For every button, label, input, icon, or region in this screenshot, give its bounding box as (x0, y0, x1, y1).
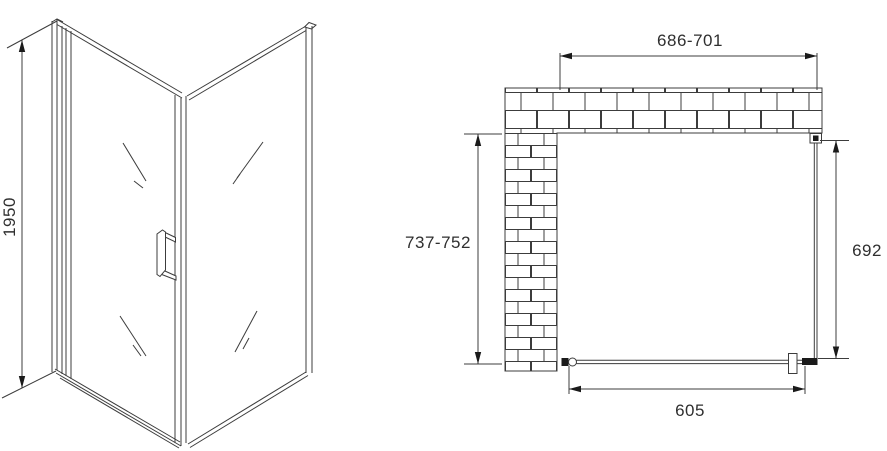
front-isometric-view (2, 19, 316, 448)
depth-dimension-label: 737-752 (398, 234, 478, 252)
side-panel-post (305, 23, 317, 374)
width-dimension-label: 686-701 (650, 32, 730, 50)
door-leaf (562, 354, 818, 374)
door-handle (157, 230, 176, 280)
technical-drawing: 1950 686-701 737-752 692 605 (0, 0, 887, 451)
hinge-pivot (569, 358, 577, 366)
door-dimension-label: 605 (671, 402, 709, 420)
hinge-side-frame (52, 19, 71, 379)
side-glass-panel (810, 134, 822, 361)
top-rails (57, 20, 306, 101)
door-dimension-line (569, 366, 805, 394)
door-handle-plan (789, 354, 798, 374)
glass-reflection-marks (120, 142, 263, 356)
side-panel-dimension-label: 692 (848, 242, 886, 260)
brick-wall-section (505, 88, 822, 371)
hinge-block (562, 358, 569, 366)
corner-post (175, 95, 186, 446)
corner-connector (802, 358, 818, 365)
plan-top-view (464, 53, 849, 394)
width-dimension-line (560, 53, 817, 90)
drawing-linework (0, 0, 887, 451)
height-dimension-label: 1950 (1, 197, 19, 237)
side-panel-dimension-line (818, 141, 849, 359)
